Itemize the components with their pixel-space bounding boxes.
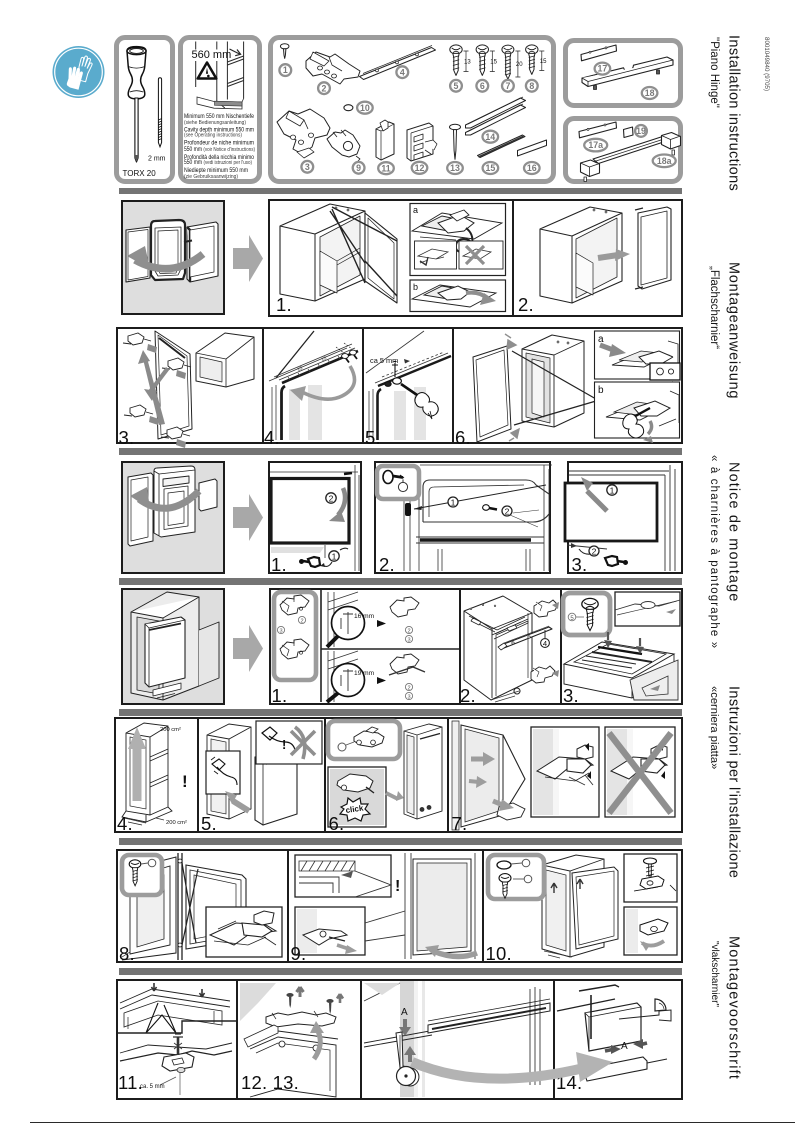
svg-text:15: 15: [540, 59, 547, 65]
svg-text:17: 17: [598, 64, 608, 74]
svg-text:6: 6: [480, 81, 485, 91]
svg-text:!: !: [282, 737, 286, 752]
svg-text:(zie Gebruiksaanwijzing): (zie Gebruiksaanwijzing): [184, 174, 238, 180]
svg-text:8: 8: [529, 81, 534, 91]
svg-text:TORX 20: TORX 20: [123, 169, 157, 178]
svg-text:b: b: [413, 282, 418, 292]
svg-text:A: A: [621, 1041, 628, 1052]
svg-text:200 cm²: 200 cm²: [160, 727, 181, 733]
svg-text:ca. 5 mm: ca. 5 mm: [140, 1084, 165, 1090]
svg-text:1: 1: [283, 65, 288, 75]
svg-text:13: 13: [464, 60, 471, 66]
svg-text:15: 15: [490, 60, 497, 66]
svg-text:5: 5: [454, 81, 459, 91]
svg-text:14: 14: [485, 132, 495, 142]
svg-text:1: 1: [331, 552, 336, 562]
svg-text:2: 2: [328, 494, 333, 504]
svg-text:16 mm: 16 mm: [354, 613, 375, 620]
svg-text:!: !: [395, 878, 400, 895]
svg-text:2: 2: [300, 619, 303, 625]
svg-text:15: 15: [320, 355, 327, 362]
svg-text:2: 2: [322, 83, 327, 93]
svg-text:ca 5 mm: ca 5 mm: [370, 356, 398, 365]
svg-text:19: 19: [636, 126, 646, 136]
svg-text:(siehe Bedienungsanleitung): (siehe Bedienungsanleitung): [184, 120, 246, 126]
svg-text:16: 16: [527, 163, 537, 173]
svg-text:4: 4: [542, 639, 546, 648]
svg-text:550 mm (vedi istruzioni per l': 550 mm (vedi istruzioni per l'uso): [184, 159, 252, 166]
svg-text:b: b: [598, 385, 604, 396]
svg-text:12: 12: [415, 163, 425, 173]
svg-text:1: 1: [450, 497, 455, 507]
svg-text:3: 3: [305, 162, 310, 172]
svg-text:9: 9: [356, 163, 361, 173]
svg-text:A: A: [401, 1007, 408, 1018]
svg-text:560 mm: 560 mm: [192, 49, 232, 61]
svg-text:a: a: [413, 205, 418, 215]
svg-text:3: 3: [279, 629, 282, 635]
svg-text:200 cm²: 200 cm²: [166, 820, 187, 826]
svg-text:18a: 18a: [657, 156, 672, 166]
svg-text:2: 2: [407, 686, 410, 692]
svg-text:3: 3: [407, 695, 410, 701]
svg-text:15: 15: [486, 163, 496, 173]
svg-text:13: 13: [450, 163, 460, 173]
svg-text:2: 2: [504, 506, 509, 516]
svg-text:4: 4: [400, 67, 405, 77]
svg-text:!: !: [182, 772, 188, 791]
svg-text:550 mm (voir Notice d'instruct: 550 mm (voir Notice d'instructions): [184, 146, 255, 153]
svg-text:17a: 17a: [588, 140, 603, 150]
svg-text:10: 10: [360, 103, 370, 113]
svg-text:13: 13: [296, 365, 303, 372]
svg-text:20: 20: [516, 62, 523, 68]
svg-text:11: 11: [381, 163, 390, 173]
svg-text:18: 18: [645, 88, 655, 98]
svg-text:2: 2: [407, 629, 410, 635]
svg-text:3: 3: [407, 638, 410, 644]
svg-text:2: 2: [592, 546, 597, 556]
svg-text:7: 7: [505, 81, 510, 91]
svg-text:19 mm: 19 mm: [354, 670, 375, 677]
svg-text:2 mm: 2 mm: [148, 156, 166, 163]
svg-text:1: 1: [610, 486, 615, 496]
svg-text:(see Operating instructions): (see Operating instructions): [184, 133, 242, 139]
